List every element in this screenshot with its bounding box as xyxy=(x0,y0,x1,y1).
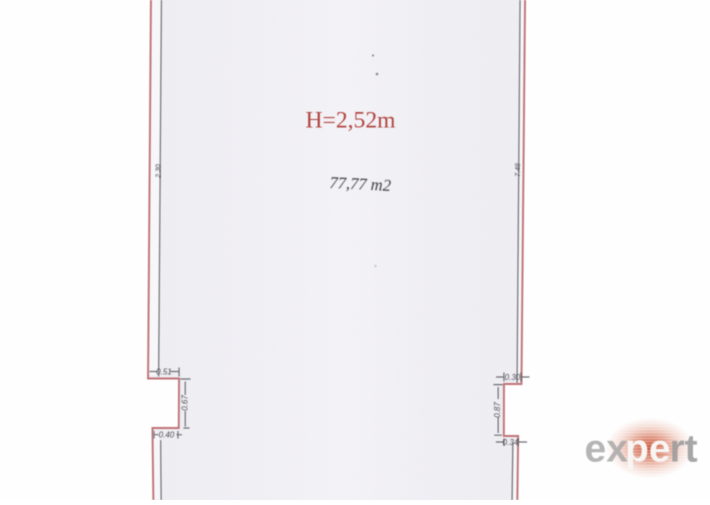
svg-text:0.40: 0.40 xyxy=(159,431,175,440)
svg-text:H=2,52m: H=2,52m xyxy=(306,108,396,134)
svg-text:0.51: 0.51 xyxy=(156,368,172,377)
svg-text:rt: rt xyxy=(670,428,698,471)
svg-text:0.67: 0.67 xyxy=(180,395,189,411)
svg-text:0.30: 0.30 xyxy=(505,373,521,382)
svg-text:ex: ex xyxy=(585,428,629,471)
svg-text:77,77 m2: 77,77 m2 xyxy=(329,173,391,195)
svg-text:7.48: 7.48 xyxy=(515,163,522,177)
svg-text:pe: pe xyxy=(625,428,671,471)
svg-text:2.30: 2.30 xyxy=(155,164,162,179)
svg-text:0.87: 0.87 xyxy=(493,402,502,418)
svg-text:0.34: 0.34 xyxy=(503,438,519,447)
